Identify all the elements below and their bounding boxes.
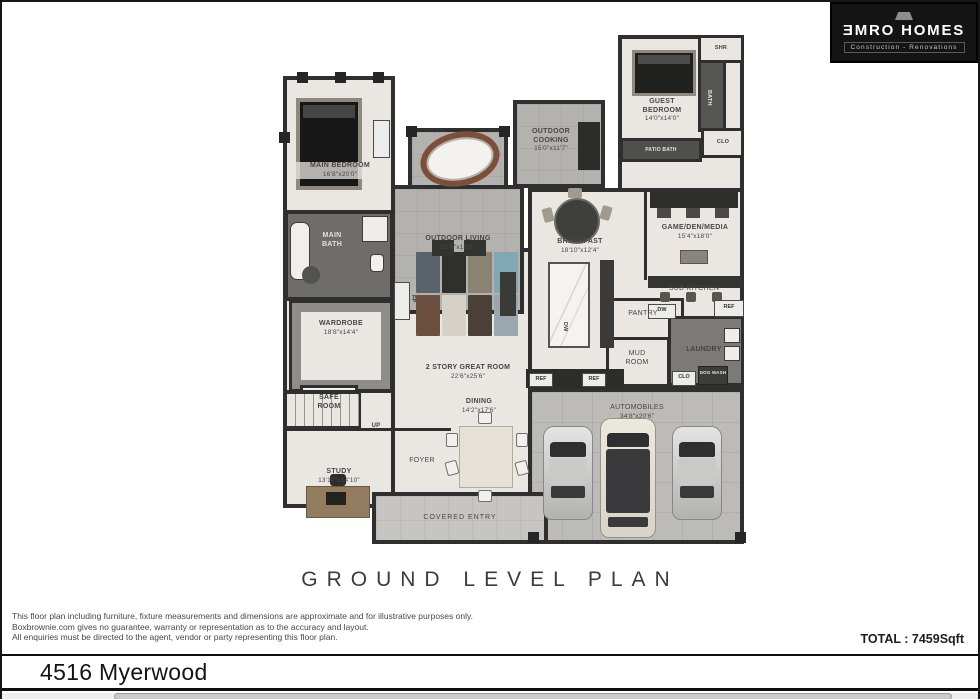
- horizontal-scrollbar[interactable]: [2, 693, 978, 699]
- car-rear-window: [680, 486, 714, 498]
- room-name: 2 STORY GREAT ROOM: [406, 364, 530, 373]
- rug-tile: [468, 295, 492, 336]
- closet-chip: CLO: [672, 371, 696, 386]
- pilaster-post: [279, 132, 290, 143]
- room-label-dining: DINING 14'2"x17'6": [446, 398, 512, 415]
- room-name: STUDY: [295, 468, 383, 477]
- room-name: SAFE ROOM: [312, 394, 346, 411]
- car-windshield: [679, 442, 715, 457]
- room-name: OUTDOOR COOKING: [522, 128, 580, 145]
- room-label-automobiles: AUTOMOBILES 34'8"x20'6": [592, 404, 682, 421]
- fridge-chip: REF: [529, 373, 553, 387]
- room-dims: 13'10"x14'10": [295, 477, 383, 486]
- pilaster-post: [297, 72, 308, 83]
- room-label-mud-room: MUD ROOM: [610, 350, 664, 367]
- pilaster-post: [335, 72, 346, 83]
- bath-rug: [302, 266, 320, 284]
- room-label-game-den-media: GAME/DEN/MEDIA 15'4"x18'0": [652, 224, 738, 241]
- disclaimer-line: This floor plan including furniture, fix…: [12, 611, 473, 622]
- rug-tile: [442, 295, 466, 336]
- fireplace-label: FP: [374, 133, 410, 140]
- room-label-pantry: PANTRY: [612, 310, 674, 319]
- room-label-main-bedroom: MAIN BEDROOM 16'8"x20'0": [291, 162, 389, 179]
- room-dims: 34'8"x20'6": [592, 413, 682, 422]
- room-label-safe-room: SAFE ROOM: [304, 394, 354, 411]
- room-label-laundry: LAUNDRY: [674, 346, 734, 355]
- disclaimer: This floor plan including furniture, fix…: [12, 611, 473, 643]
- scrollbar-thumb[interactable]: [114, 693, 952, 699]
- patio-bath-label: PATIO BATH: [624, 147, 698, 153]
- floor-plan-page: ƎMRO HOMES Construction - Renovations SH…: [0, 0, 980, 699]
- wall: [391, 428, 451, 431]
- address-text: 4516 Myerwood: [40, 659, 208, 686]
- brand-name: ƎMRO HOMES: [843, 23, 965, 39]
- dining-table: [459, 426, 513, 488]
- room-label-foyer: FOYER: [394, 457, 450, 466]
- room-label-sub-kitchen: SUB KITCHEN: [652, 285, 736, 294]
- rug-tile: [468, 252, 492, 293]
- disclaimer-line: All enquiries must be directed to the ag…: [12, 632, 473, 643]
- room-name: BREAKFAST: [538, 238, 622, 247]
- kitchen-appliance-wall: [600, 260, 614, 348]
- van-windshield: [607, 433, 649, 447]
- wall: [283, 210, 395, 213]
- rug-tile: [416, 252, 440, 293]
- washer: [724, 328, 740, 343]
- breakfast-chair: [568, 188, 582, 198]
- media-sectional: [650, 192, 738, 208]
- sofa-side: [500, 272, 516, 316]
- room-label-covered-entry: COVERED ENTRY: [400, 514, 520, 523]
- room-name: MAIN BATH: [314, 232, 350, 249]
- rug-tile: [442, 252, 466, 293]
- fireplace-main-bedroom: FP: [373, 120, 390, 158]
- pilaster-post: [373, 72, 384, 83]
- room-label-outdoor-cooking: OUTDOOR COOKING 15'0"x11'7": [518, 128, 584, 154]
- toilet: [370, 254, 384, 272]
- car-rear-window: [551, 486, 585, 498]
- car-right: [672, 426, 722, 520]
- room-dims: 16'8"x20'0": [291, 171, 389, 180]
- stairs-up-label: UP: [366, 423, 386, 429]
- dog-wash-label: DOG WASH: [699, 370, 727, 375]
- room-guest-bath: [698, 60, 726, 132]
- room-name: AUTOMOBILES: [592, 404, 682, 413]
- media-cushion: [715, 208, 729, 218]
- room-label-breakfast: BREAKFAST 18'10"x12'4": [538, 238, 622, 255]
- laptop: [326, 492, 346, 505]
- address-bar: 4516 Myerwood: [2, 654, 978, 691]
- dining-chair: [478, 490, 492, 502]
- media-table: [680, 250, 708, 264]
- room-name: COVERED ENTRY: [400, 514, 520, 523]
- room-dims: 18'8"x14'4": [299, 329, 383, 338]
- room-dims: 15'4"x18'0": [652, 233, 738, 242]
- room-label-wardrobe: WARDROBE 18'8"x14'4": [299, 320, 383, 337]
- disclaimer-line: Boxbrownie.com gives no guarantee, warra…: [12, 622, 473, 633]
- room-name: FOYER: [394, 457, 450, 466]
- pilaster-post: [528, 532, 539, 543]
- brand-tagline: Construction - Renovations: [844, 42, 965, 53]
- room-dims: 21'6"x15'0": [410, 244, 506, 253]
- room-label-study: STUDY 13'10"x14'10": [295, 468, 383, 485]
- van-rear-window: [608, 517, 648, 527]
- room-name: SUB KITCHEN: [652, 285, 736, 294]
- car-roof: [678, 458, 716, 485]
- room-dims: 18'10"x12'4": [538, 247, 622, 256]
- room-name: MUD ROOM: [620, 350, 654, 367]
- dining-chair: [446, 433, 458, 447]
- room-label-outdoor-living: OUTDOOR LIVING 21'6"x15'0": [410, 235, 506, 252]
- van-roof: [606, 449, 650, 513]
- room-name: WARDROBE: [299, 320, 383, 329]
- guest-bath-label: BATH: [706, 76, 712, 120]
- media-cushion: [657, 208, 671, 218]
- room-label-main-bath: MAIN BATH: [302, 232, 362, 249]
- kitchen-stool: [686, 292, 696, 302]
- fireplace-great-room: FP: [394, 282, 410, 320]
- room-label-great-room: 2 STORY GREAT ROOM 22'6"x25'6": [406, 364, 530, 381]
- pilaster-post: [499, 126, 510, 137]
- shower-label: SHR: [704, 45, 738, 51]
- island-dw-label: DW: [562, 314, 568, 340]
- pilaster-post: [735, 532, 746, 543]
- van-middle: [600, 418, 656, 538]
- emro-logo-icon: [895, 12, 913, 20]
- plan-title: GROUND LEVEL PLAN: [2, 568, 978, 592]
- wall: [644, 188, 647, 280]
- room-name: GUEST BEDROOM: [639, 98, 685, 115]
- fridge-chip: REF: [714, 300, 744, 317]
- room-name: OUTDOOR LIVING: [410, 235, 506, 244]
- room-dims: 15'0"x11'7": [518, 145, 584, 154]
- room-dims: 14'0"x14'0": [624, 115, 700, 124]
- room-name: DINING: [446, 398, 512, 407]
- wall: [283, 298, 395, 301]
- shower-stall: [362, 216, 388, 242]
- fridge-chip: REF: [582, 373, 606, 387]
- room-name: PANTRY: [612, 310, 674, 319]
- closet-label: CLO: [707, 139, 739, 145]
- kitchen-stool: [660, 292, 670, 302]
- car-roof: [549, 458, 587, 485]
- media-cushion: [686, 208, 700, 218]
- room-label-guest-bedroom: GUEST BEDROOM 14'0"x14'0": [624, 98, 700, 124]
- emro-homes-logo: ƎMRO HOMES Construction - Renovations: [830, 2, 978, 63]
- room-wardrobe: [289, 300, 393, 392]
- kitchen-island: [548, 262, 590, 348]
- room-name: GAME/DEN/MEDIA: [652, 224, 738, 233]
- guest-bed: [632, 50, 696, 96]
- car-windshield: [550, 442, 586, 457]
- car-left: [543, 426, 593, 520]
- total-sqft: TOTAL : 7459Sqft: [861, 632, 965, 646]
- dog-wash-station: [698, 366, 728, 385]
- room-name: LAUNDRY: [674, 346, 734, 355]
- dining-chair: [516, 433, 528, 447]
- room-dims: 22'6"x25'6": [406, 373, 530, 382]
- room-name: MAIN BEDROOM: [291, 162, 389, 171]
- fireplace-label: FP: [395, 295, 431, 302]
- room-dims: 14'2"x17'6": [446, 407, 512, 416]
